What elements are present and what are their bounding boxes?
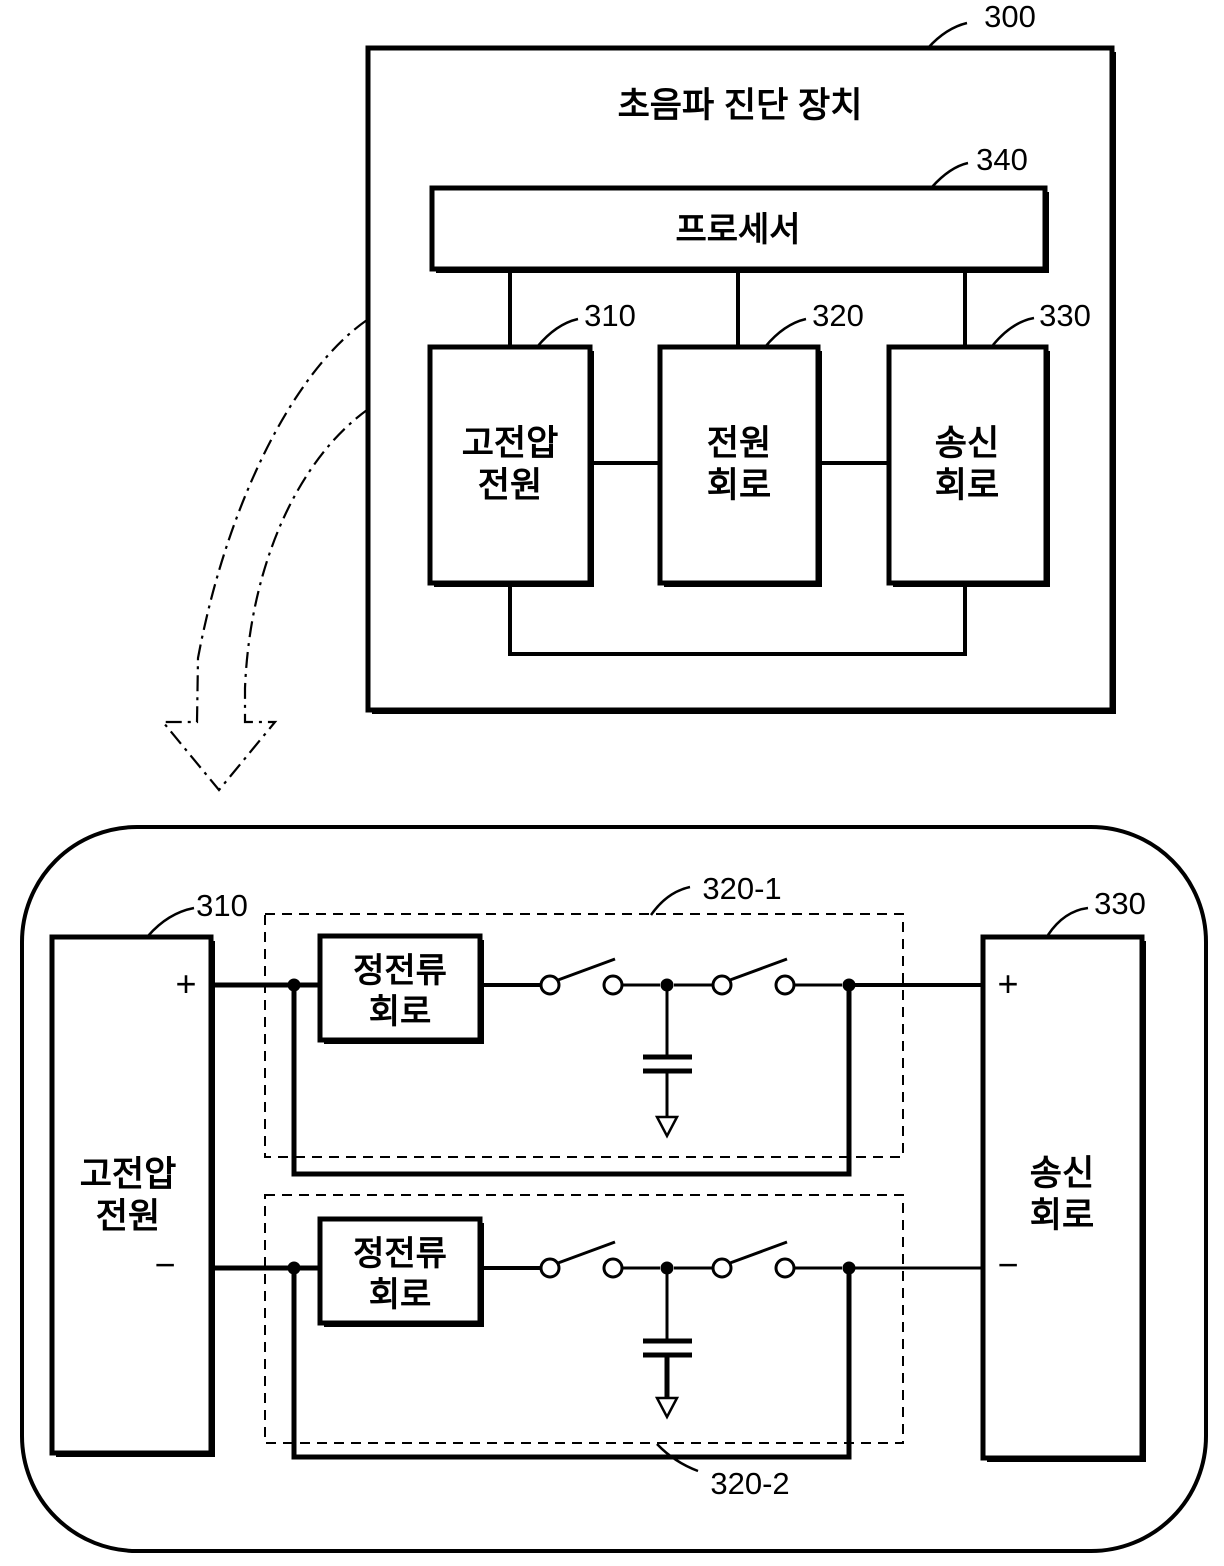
power-circuit-detail-diagram: 310 320-1 320-2 330 고전압 전원 + − 송신 회로 + − (22, 827, 1206, 1551)
ref-320-2-label: 320-2 (710, 1466, 789, 1501)
ref-320-1-label: 320-1 (702, 871, 781, 906)
tx-circuit-block-border (889, 347, 1046, 583)
switch-terminal-icon (604, 976, 622, 994)
hv-power-block-label-line1: 고전압 (462, 424, 559, 463)
switch-terminal-icon (541, 1259, 559, 1277)
hv-supply-label-line1: 고전압 (80, 1155, 177, 1194)
switch-terminal-icon (604, 1259, 622, 1277)
junction-dot (288, 1262, 301, 1275)
channel2-cc-label-line2: 회로 (369, 1276, 432, 1314)
tx-circuit-box: 송신 회로 + − (983, 937, 1146, 1462)
junction-dot (661, 1262, 674, 1275)
switch-terminal-icon (713, 1259, 731, 1277)
tx-circuit-minus-sign: − (997, 1244, 1018, 1285)
power-circuit-block-label-line1: 전원 (707, 424, 771, 463)
switch-terminal-icon (541, 976, 559, 994)
hv-supply-label-line2: 전원 (96, 1197, 160, 1236)
channel1-cc-box: 정전류 회로 (320, 936, 484, 1044)
hv-supply-plus-sign: + (175, 963, 196, 1004)
channel1-cc-label-line1: 정전류 (353, 952, 447, 990)
power-circuit-block: 전원 회로 (660, 347, 822, 587)
ref-300-leader-line (928, 23, 967, 48)
ref-320-top-label: 320 (812, 298, 864, 333)
figure-canvas: 300 초음파 진단 장치 340 프로세서 310 320 330 (0, 0, 1224, 1566)
tx-circuit-plus-sign: + (997, 963, 1018, 1004)
hv-supply-box-border (52, 937, 211, 1453)
channel2-cc-label-line1: 정전류 (353, 1235, 447, 1273)
device-block-diagram: 300 초음파 진단 장치 340 프로세서 310 320 330 (368, 0, 1116, 714)
tx-circuit-block-label-line1: 송신 (935, 424, 999, 463)
tx-circuit-block-label-line2: 회로 (935, 466, 999, 505)
hv-power-block: 고전압 전원 (430, 347, 594, 587)
junction-dot (661, 979, 674, 992)
processor-box: 프로세서 (432, 188, 1049, 273)
ref-310-bottom-label: 310 (196, 888, 248, 923)
ref-330-top-label: 330 (1039, 298, 1091, 333)
switch-terminal-icon (713, 976, 731, 994)
ref-340-label: 340 (976, 142, 1028, 177)
junction-dot (843, 979, 856, 992)
ref-330-bottom-label: 330 (1094, 886, 1146, 921)
switch-terminal-icon (776, 1259, 794, 1277)
hv-power-block-label-line2: 전원 (478, 466, 542, 505)
device-title: 초음파 진단 장치 (618, 86, 863, 125)
hv-supply-box: 고전압 전원 + − (52, 937, 215, 1457)
channel2-cc-box: 정전류 회로 (320, 1219, 484, 1327)
tx-circuit-block: 송신 회로 (889, 347, 1050, 587)
hv-power-block-border (430, 347, 590, 583)
patent-figure-page: 300 초음파 진단 장치 340 프로세서 310 320 330 (0, 0, 1224, 1566)
junction-dot (288, 979, 301, 992)
zoom-detail-arrow (163, 320, 367, 790)
hv-supply-minus-sign: − (154, 1244, 175, 1285)
tx-circuit-label-line1: 송신 (1030, 1154, 1094, 1193)
ref-300-label: 300 (984, 0, 1036, 34)
power-circuit-block-border (660, 347, 818, 583)
ref-310-top-label: 310 (584, 298, 636, 333)
junction-dot (843, 1262, 856, 1275)
channel1-cc-label-line2: 회로 (369, 993, 432, 1031)
tx-circuit-label-line2: 회로 (1030, 1196, 1094, 1235)
switch-terminal-icon (776, 976, 794, 994)
power-circuit-block-label-line2: 회로 (707, 466, 771, 505)
processor-label: 프로세서 (675, 211, 800, 249)
